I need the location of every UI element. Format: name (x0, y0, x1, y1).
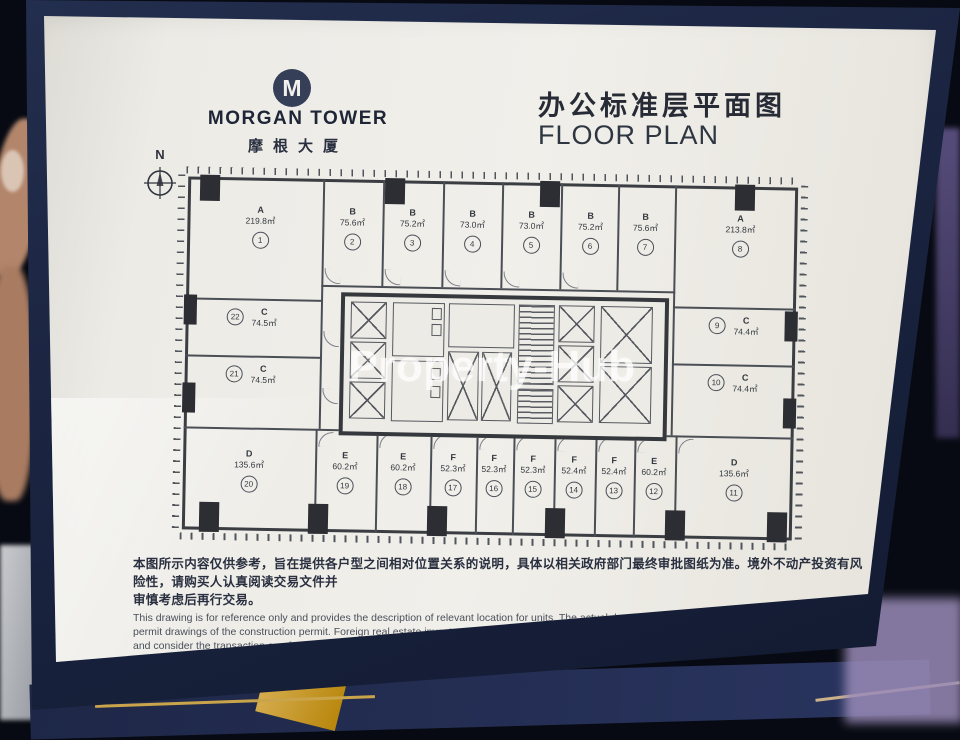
north-label: N (140, 147, 180, 162)
unit-label: B 75.2㎡ 3 (382, 206, 443, 252)
property-hub-watermark: Property-Hub (318, 342, 666, 392)
north-compass: N (140, 147, 180, 207)
brand-name-english: MORGAN TOWER (180, 108, 416, 130)
disclaimer-chinese-line1: 本图所示内容仅供参考，旨在提供各户型之间相对位置关系的说明，具体以相关政府部门最… (133, 556, 865, 592)
unit-label: B 73.0㎡ 4 (442, 207, 503, 253)
unit-label: 21 C 74.5㎡ (202, 362, 298, 387)
unit-label: 22 C 74.5㎡ (204, 305, 300, 330)
brand-name-chinese: 摩根大厦 (180, 135, 416, 156)
background-reflection (936, 128, 960, 438)
unit-label: B 75.6㎡ 7 (615, 210, 676, 256)
unit-label: E 60.2㎡ 19 (314, 449, 375, 495)
unit-label: D 135.6㎡ 11 (703, 456, 764, 502)
unit-label: E 60.2㎡ 12 (623, 454, 684, 500)
elevator-shaft-icon (558, 305, 595, 343)
unit-label: D 135.6㎡ 20 (219, 447, 280, 493)
unit-label: B 75.2㎡ 6 (560, 209, 621, 255)
elevator-shaft-icon (350, 301, 387, 339)
morgan-tower-logo-icon: M (273, 69, 311, 107)
page-title-chinese: 办公标准层平面图 (538, 84, 786, 123)
unit-label: B 73.0㎡ 5 (501, 208, 562, 254)
page-title-english: FLOOR PLAN (538, 120, 719, 151)
stairwell (517, 389, 554, 425)
compass-icon (141, 164, 179, 202)
thumb-nail (1, 150, 24, 192)
unit-label: B 75.6㎡ 2 (322, 205, 383, 251)
unit-label: A 219.8㎡ 1 (230, 203, 291, 249)
unit-label: 10 C 74.4㎡ (684, 371, 780, 396)
unit-label: 9 C 74.4㎡ (685, 314, 781, 339)
unit-label: A 213.8㎡ 8 (710, 212, 771, 258)
